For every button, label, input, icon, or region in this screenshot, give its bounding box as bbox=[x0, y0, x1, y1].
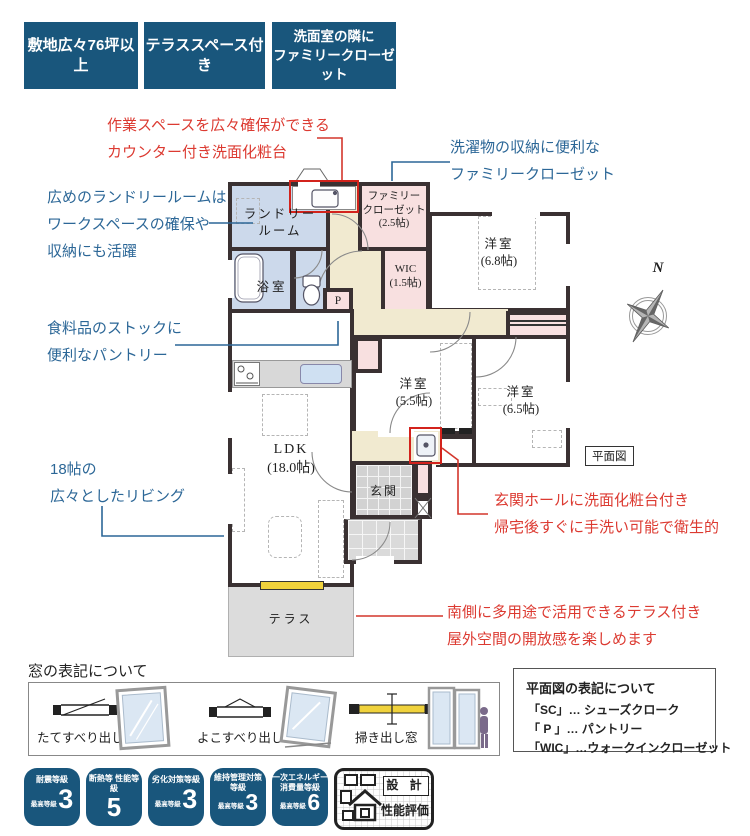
grade-badge-seismic-label: 耐震等級 bbox=[36, 775, 68, 784]
grade-badge-maintenance-prefix: 最高等級 bbox=[218, 803, 244, 811]
sliding-window-label: 掃き出し窓 bbox=[355, 727, 418, 746]
label-laundry-line2: ルーム bbox=[230, 223, 330, 240]
label-ldk-line1: LDK bbox=[228, 440, 354, 459]
grade-badge-deterioration: 劣化対策等級 最高等級 3 bbox=[148, 768, 204, 826]
label-family-closet-line2: クローゼット bbox=[358, 204, 430, 218]
label-terrace: テラス bbox=[228, 610, 354, 627]
grade-badge-energy-label1: 一次エネルギー bbox=[272, 773, 328, 782]
label-bed68-line2: (6.8帖) bbox=[428, 253, 570, 270]
cert-mark-bottom-text: 性能評価 bbox=[381, 800, 429, 819]
label-bed55: 洋室 (5.5帖) bbox=[352, 376, 476, 410]
grade-badge-insulation-value: 5 bbox=[86, 794, 142, 820]
label-laundry: ランドリー ルーム bbox=[230, 206, 330, 240]
grade-badge-energy-value: 6 bbox=[307, 790, 320, 814]
compass-north-text: N bbox=[653, 260, 664, 276]
awning-window-picture bbox=[277, 685, 339, 753]
label-pantry-text: P bbox=[335, 295, 341, 307]
compass-north-label: N bbox=[648, 260, 668, 277]
label-wic: WIC (1.5帖) bbox=[381, 262, 430, 290]
person-icon bbox=[480, 707, 488, 748]
label-bed65-line1: 洋室 bbox=[472, 384, 570, 401]
grade-badge-deterioration-label: 劣化対策等級 bbox=[152, 775, 200, 784]
plan-caption: 平面図 bbox=[585, 446, 634, 466]
plan-legend-item-sc: 「SC」… シューズクローク bbox=[528, 701, 715, 720]
label-bed55-line2: (5.5帖) bbox=[352, 393, 476, 410]
window-legend-box: たてすべり出し窓 よこすべり出し窓 bbox=[28, 682, 500, 756]
label-genkan: 玄関 bbox=[352, 482, 416, 499]
grade-badge-energy: 一次エネルギー 消費量等級 最高等級 6 bbox=[272, 768, 328, 826]
design-evaluation-mark: 設 計 性能評価 bbox=[334, 768, 434, 830]
plan-legend-item-p: 「 P 」… パントリー bbox=[528, 720, 715, 739]
grade-badge-insulation-label1: 断熱等 bbox=[89, 774, 113, 783]
grade-badge-deterioration-value: 3 bbox=[182, 785, 197, 813]
label-bed65-line2: (6.5帖) bbox=[472, 401, 570, 418]
hatch-cross bbox=[415, 498, 431, 518]
label-wic-line2: (1.5帖) bbox=[381, 276, 430, 290]
grade-badge-maintenance: 維持管理対策 等級 最高等級 3 bbox=[210, 768, 266, 826]
casement-window-picture bbox=[113, 685, 173, 753]
label-bath-text: 浴室 bbox=[256, 280, 287, 294]
label-family-closet-line1: ファミリー bbox=[358, 190, 430, 204]
label-pantry: P bbox=[323, 288, 353, 314]
sliding-door-picture bbox=[427, 685, 493, 753]
highlight-entry-basin bbox=[409, 427, 442, 464]
grade-badge-seismic: 耐震等級 最高等級 3 bbox=[24, 768, 80, 826]
grade-badge-insulation-label2: 性能等級 bbox=[110, 774, 139, 793]
grade-badge-maintenance-label1: 維持管理対策 bbox=[214, 773, 262, 782]
window-legend-title-text: 窓の表記について bbox=[28, 663, 148, 680]
window-legend-title: 窓の表記について bbox=[28, 660, 148, 681]
flyer-canvas: 敷地広々76坪以上 テラススペース付き 洗面室の隣に ファミリークローゼット 作… bbox=[0, 0, 750, 836]
plan-legend-title: 平面図の表記について bbox=[526, 678, 715, 697]
plan-legend-box: 平面図の表記について 「SC」… シューズクローク 「 P 」… パントリー 「… bbox=[513, 668, 716, 752]
cert-house-icon bbox=[339, 773, 383, 827]
toilet-icon bbox=[303, 276, 320, 305]
grade-badge-seismic-prefix: 最高等級 bbox=[31, 801, 57, 809]
label-bath: 浴室 bbox=[250, 276, 294, 295]
label-bed65: 洋室 (6.5帖) bbox=[472, 384, 570, 418]
grade-badge-insulation: 断熱等 性能等級 5 bbox=[86, 768, 142, 826]
grade-badge-seismic-value: 3 bbox=[58, 785, 73, 813]
label-terrace-text: テラス bbox=[269, 612, 314, 626]
label-laundry-line1: ランドリー bbox=[230, 206, 330, 223]
label-bed68: 洋室 (6.8帖) bbox=[428, 236, 570, 270]
grade-badge-deterioration-prefix: 最高等級 bbox=[155, 801, 181, 809]
label-bed68-line1: 洋室 bbox=[428, 236, 570, 253]
label-ldk-line2: (18.0帖) bbox=[228, 459, 354, 478]
label-family-closet: ファミリー クローゼット (2.5帖) bbox=[358, 190, 430, 231]
grade-badge-maintenance-label2: 等級 bbox=[230, 783, 246, 792]
plan-caption-text: 平面図 bbox=[592, 451, 627, 463]
grade-badge-energy-prefix: 最高等級 bbox=[280, 803, 306, 811]
stove-burners bbox=[236, 366, 258, 383]
cert-mark-top-text: 設 計 bbox=[383, 776, 429, 796]
sliding-window-label-text: 掃き出し窓 bbox=[355, 731, 418, 745]
casement-window-symbol bbox=[51, 697, 121, 721]
grade-badge-maintenance-value: 3 bbox=[245, 790, 258, 814]
label-wic-line1: WIC bbox=[381, 262, 430, 276]
sliding-window-symbol bbox=[347, 693, 437, 725]
awning-window-symbol bbox=[207, 697, 273, 721]
label-genkan-text: 玄関 bbox=[370, 484, 398, 498]
plan-legend-item-wic: 「WIC」…ウォークインクローゼット bbox=[528, 739, 715, 758]
label-bed55-line1: 洋室 bbox=[352, 376, 476, 393]
label-ldk: LDK (18.0帖) bbox=[228, 440, 354, 478]
compass-icon bbox=[627, 290, 669, 342]
label-family-closet-line3: (2.5帖) bbox=[358, 217, 430, 231]
